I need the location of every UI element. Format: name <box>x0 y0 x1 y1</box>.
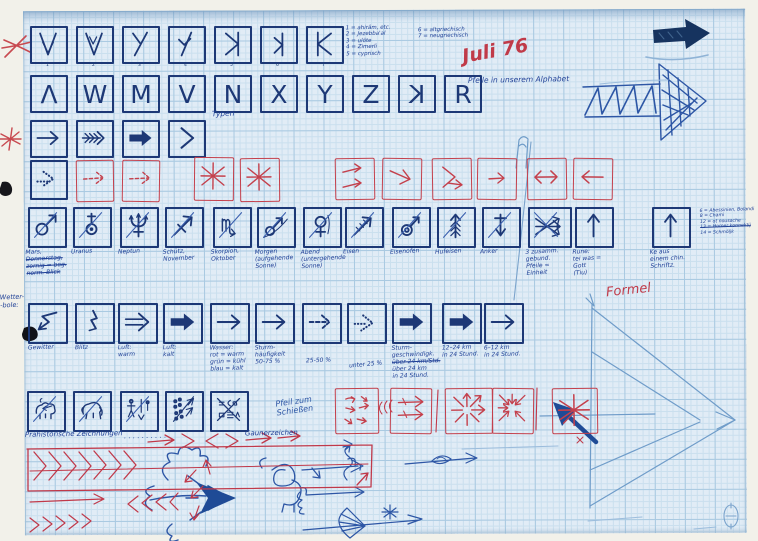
red-sign-box-converge-in <box>492 388 535 435</box>
side-footnote-list-line: 14 = Schmöljk <box>700 229 755 236</box>
symbol-label-fir-arrow: Hufeisen <box>435 247 462 255</box>
arrow-type-box-2 <box>76 120 114 158</box>
symbol-label-mars-curve: Morgen(aufgehendeSonne) <box>254 247 293 270</box>
red-arrow-box-4 <box>477 158 518 201</box>
red-sign-box-arrows-right <box>390 388 433 435</box>
weather-box-7 <box>302 303 342 344</box>
cross-out-stroke <box>531 210 561 240</box>
chevron-icon <box>171 123 201 153</box>
glyph-box-4 <box>168 26 206 64</box>
pictogram-box-sign-marks <box>210 391 249 432</box>
symbol-label-neptune: Neptun <box>118 247 140 255</box>
glyph-box-5 <box>214 26 252 64</box>
cross-out-stroke <box>485 210 515 240</box>
scanned-sketch-page: 1234567ΛWMVNXYZKRMars,Donnerstag,zornig … <box>0 0 758 541</box>
letter-box-Λ: Λ <box>30 75 68 113</box>
gauner-label: Gaunerzeichen <box>245 429 298 438</box>
asterisk-icon <box>196 159 230 193</box>
weather-box-1 <box>28 303 68 344</box>
letter-V: V <box>170 77 204 111</box>
symbol-box-uranus <box>73 207 112 248</box>
symbol-box-mars-curve <box>257 207 296 248</box>
arrow-bold-icon <box>166 306 198 338</box>
radiate-out-icon <box>447 390 487 430</box>
praehistorisch-label-line: Prähistorische Zeichnungen <box>25 429 123 439</box>
symbol-box-anchor-arrow <box>482 207 521 248</box>
arrow-thin-icon <box>213 306 245 338</box>
cross-out-stroke <box>440 210 470 240</box>
weather-label-3: Luft:warm <box>118 344 135 359</box>
letter-box-X: X <box>260 75 298 113</box>
weather-label-4: Luft:kalt <box>163 344 177 359</box>
arrow-thin-icon <box>258 306 290 338</box>
arrow-type-box-4 <box>168 120 206 158</box>
arrow-up-icon <box>578 210 609 241</box>
arrow-type-box-1 <box>30 120 68 158</box>
symbol-label-scorpio: Skorpion,Oktober <box>211 247 240 263</box>
cross-out-stroke <box>395 210 425 240</box>
weather-label-10: 12–24 kmin 24 Stund. <box>442 343 479 358</box>
red-sign-box-radiate-out <box>445 388 494 435</box>
weather-label-6-line: 50-75 % <box>255 358 285 366</box>
weather-label-1: Gewitter <box>28 344 54 352</box>
cross-out-stroke <box>30 394 60 424</box>
typen-label-line: Typen <box>212 110 235 120</box>
red-asterisk-box-2 <box>240 158 280 202</box>
letter-M: M <box>124 77 158 111</box>
weather-box-6 <box>255 303 295 344</box>
arrow-left-icon <box>575 160 610 195</box>
arrows-right-icon <box>392 390 428 426</box>
weather-box-5 <box>210 303 250 344</box>
script-list-left-line: 5 = cyprisch <box>346 51 391 58</box>
weather-label-4-line: kalt <box>163 351 177 359</box>
symbol-box-neptune <box>120 207 159 248</box>
cross-out-stroke <box>123 210 153 240</box>
symbol-box-fir-arrow <box>437 207 476 248</box>
arrow-chevrons-icon <box>79 123 109 153</box>
symbol-box-iron-arrow <box>345 207 384 248</box>
weather-label-7: 25-50 % <box>306 357 331 365</box>
red-arrow-box-3 <box>432 158 473 201</box>
arrow-up-icon <box>655 210 686 241</box>
arrow-diag-icon <box>384 160 419 195</box>
glyph-number: 7 <box>322 63 325 68</box>
pictogram-box-figures <box>120 391 159 432</box>
margin-wetter-note: Wetter--bole: <box>0 294 24 310</box>
symbol-label-uranus: Uranus <box>71 247 93 255</box>
typen-label: Typen <box>212 110 235 120</box>
red-arrow-box-2 <box>382 158 423 201</box>
glyph-number: 4 <box>184 63 187 68</box>
arrow-bold-icon <box>395 306 427 338</box>
symbol-label-scorpio-line: Oktober <box>211 254 240 263</box>
red-arrow-box-1 <box>335 158 376 201</box>
glyph-box-3 <box>122 26 160 64</box>
y-slant-icon <box>125 29 155 59</box>
two-arrows-icon <box>337 160 372 195</box>
symbol-label-venus-eve: Abend(untergehendeSonne) <box>300 247 346 271</box>
symbol-box-arrow-up <box>652 207 691 248</box>
red-sign-box-star-arrow <box>552 388 599 435</box>
letter-box-N: N <box>214 75 252 113</box>
symbol-label-arrow-up-line: (Tiu) <box>573 268 602 277</box>
weather-label-11-line: in 24 Stund. <box>484 350 521 358</box>
arrow-bold-icon <box>125 123 155 153</box>
glyph-box-7 <box>306 26 344 64</box>
pfeile-alphabet-note: Pfeile in unserem Alphabet <box>468 75 569 86</box>
v-check-icon <box>79 29 109 59</box>
sign-marks-icon <box>213 394 244 425</box>
weather-label-2: Blitz <box>75 344 88 352</box>
symbol-label-neptune-line: Neptun <box>118 247 140 255</box>
zigzag-icon <box>31 306 63 338</box>
arrow-dotted-icon <box>33 163 63 193</box>
symbol-label-three-arrows: 3 zusamm.gebund.Pfeile =Einheit <box>525 247 560 277</box>
v-arrow-icon <box>33 29 63 59</box>
arrow-bold-icon <box>445 306 477 338</box>
letter-box-W: W <box>76 75 114 113</box>
praehistorisch-label: Prähistorische Zeichnungen <box>25 429 123 439</box>
arrow-small-icon <box>479 160 514 195</box>
weather-box-4 <box>163 303 203 344</box>
symbol-label-sagittarius: Schütz,November <box>163 247 195 263</box>
pictogram-box-dots-arrows <box>165 391 204 432</box>
symbol-label-iron-arrow-line: Eisen <box>343 248 359 256</box>
pictogram-box-bison <box>27 391 66 432</box>
letter-Y: Y <box>308 77 342 111</box>
converge-in-icon <box>494 390 530 426</box>
k-cap-icon <box>309 29 339 59</box>
arrow-dashed-b-icon <box>305 306 337 338</box>
cross-out-stroke <box>216 210 246 240</box>
glyph-number: 6 <box>276 63 279 68</box>
dots-arrows-icon <box>168 394 199 425</box>
red-asterisk-box-1 <box>194 157 234 201</box>
letter-box-Y: Y <box>306 75 344 113</box>
red-sign-box-scatter-arrows <box>335 388 380 435</box>
weather-label-1-line: Gewitter <box>28 344 54 352</box>
arrow-double-icon <box>121 306 153 338</box>
symbol-box-three-arrows <box>528 207 572 248</box>
weather-box-3 <box>118 303 158 344</box>
letter-W: W <box>78 77 112 111</box>
glyph-box-2 <box>76 26 114 64</box>
blitz-icon <box>78 306 110 338</box>
cross-out-stroke <box>168 210 198 240</box>
cross-out-stroke <box>348 210 378 240</box>
letter-N: N <box>216 77 250 111</box>
arrow-lr-icon <box>529 160 564 195</box>
y-hook-icon <box>171 29 201 59</box>
red-dashed-box-1 <box>76 160 115 203</box>
arrow-dotted-b-icon <box>350 306 382 338</box>
pfeile-alphabet-note-line: Pfeile in unserem Alphabet <box>468 75 569 86</box>
letter-Z: Z <box>354 77 388 111</box>
weather-label-11: 6–12 kmin 24 Stund. <box>484 343 521 358</box>
weather-label-6: Sturm-häufigkeit50-75 % <box>255 343 286 365</box>
letter-box-Z: Z <box>352 75 390 113</box>
star-arrow-icon <box>554 390 594 430</box>
dotted-arrow-box <box>30 160 68 200</box>
letter-k-mirrored: K <box>400 77 434 111</box>
weather-label-7-line: 25-50 % <box>306 357 331 365</box>
symbol-box-arrow-up <box>575 207 614 248</box>
symbol-label-anchor-arrow-line: Anker <box>480 248 498 256</box>
weather-label-5: Wasser:rot = warmgrün = kühlblau = kalt <box>210 343 246 373</box>
weather-box-11 <box>484 303 524 344</box>
script-list-right-line: 7 = neugriechisch <box>418 33 468 40</box>
letter-Λ: Λ <box>32 77 66 111</box>
asterisk-icon <box>242 160 276 194</box>
symbol-label-arrow-up: Rune:tei was =Gott(Tiu) <box>572 247 602 277</box>
chevron-arrow-icon <box>434 160 469 195</box>
arrow-thin-icon <box>33 123 63 153</box>
red-dashed-box-2 <box>122 160 161 203</box>
symbol-box-venus-eve <box>303 207 342 248</box>
arrow-type-box-3 <box>122 120 160 158</box>
symbol-label-arrow-up: Ke auseinem chin.Schriftz. <box>649 247 685 270</box>
k-rev-long-icon <box>217 29 247 59</box>
arrow-thin-icon <box>487 306 519 338</box>
red-arrow-box-5 <box>527 158 568 201</box>
letter-box-M: M <box>122 75 160 113</box>
glyph-number: 2 <box>92 63 95 68</box>
symbol-box-mars-ring <box>392 207 431 248</box>
weather-box-10 <box>442 303 482 344</box>
pictogram-box-mammoth <box>73 391 112 432</box>
cross-out-stroke <box>123 394 153 424</box>
cross-out-stroke <box>76 394 106 424</box>
symbol-label-anchor-arrow: Anker <box>480 248 498 256</box>
glyph-number: 1 <box>46 63 49 68</box>
cross-out-stroke <box>306 210 336 240</box>
symbol-label-uranus-line: Uranus <box>71 247 93 255</box>
weather-label-10-line: in 24 Stund. <box>442 350 479 358</box>
arrow-dashed-icon <box>78 162 110 194</box>
symbol-label-fir-arrow-line: Hufeisen <box>435 247 462 255</box>
letter-box-K: K <box>398 75 436 113</box>
k-rev-short-icon <box>263 29 293 59</box>
glyph-number: 5 <box>230 63 233 68</box>
script-list-left: 1 = ahirâm, etc.2 = Jezebba'al3 = ulöte4… <box>346 25 391 58</box>
arrow-dashed-icon <box>124 162 156 194</box>
symbol-box-sagittarius <box>165 207 204 248</box>
cross-out-stroke <box>31 210 61 240</box>
symbol-label-iron-arrow: Eisen <box>343 248 359 256</box>
red-asterisk-mark <box>0 128 21 150</box>
weather-box-2 <box>75 303 115 344</box>
scatter-arrows-icon <box>337 390 375 428</box>
margin-wetter-note-line: -bole: <box>0 301 24 309</box>
side-footnote-list: 6 = Abessinien, Bolandi8 = Chami12 = ot … <box>700 207 756 236</box>
cross-out-stroke <box>260 210 290 240</box>
glyph-box-6 <box>260 26 298 64</box>
cross-out-stroke <box>76 210 106 240</box>
red-arrow-box-6 <box>573 158 614 201</box>
weather-box-9 <box>392 303 432 344</box>
weather-label-3-line: warm <box>118 351 135 359</box>
symbol-label-mars: Mars,Donnerstag,zornig = bog.norm. Blick <box>25 247 67 277</box>
praehistorisch-dots: . . . . . . . . . . <box>124 432 166 441</box>
symbol-box-scorpio <box>213 207 252 248</box>
weather-label-5-line: blau = kalt <box>210 365 246 373</box>
symbol-box-mars <box>28 207 67 248</box>
weather-box-8 <box>347 303 387 344</box>
glyph-number: 3 <box>138 63 141 68</box>
letter-X: X <box>262 77 296 111</box>
gauner-label-line: Gaunerzeichen <box>245 429 298 438</box>
glyph-box-1 <box>30 26 68 64</box>
weather-label-2-line: Blitz <box>75 344 88 352</box>
praehistorisch-dots-line: . . . . . . . . . . <box>124 432 166 441</box>
script-list-right: 6 = altgriechisch7 = neugriechisch <box>418 27 468 41</box>
weather-label-9: Sturm-geschwindigk.über 24 km/Std.über 2… <box>391 343 441 380</box>
letter-box-V: V <box>168 75 206 113</box>
